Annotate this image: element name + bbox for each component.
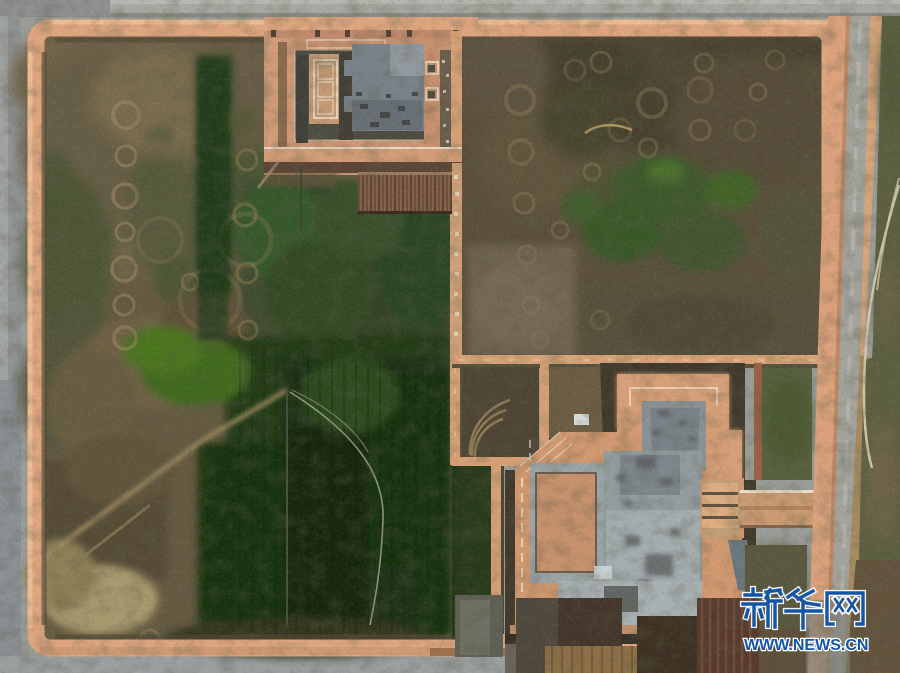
svg-text:WWW.NEWS.CN: WWW.NEWS.CN [744,637,868,654]
